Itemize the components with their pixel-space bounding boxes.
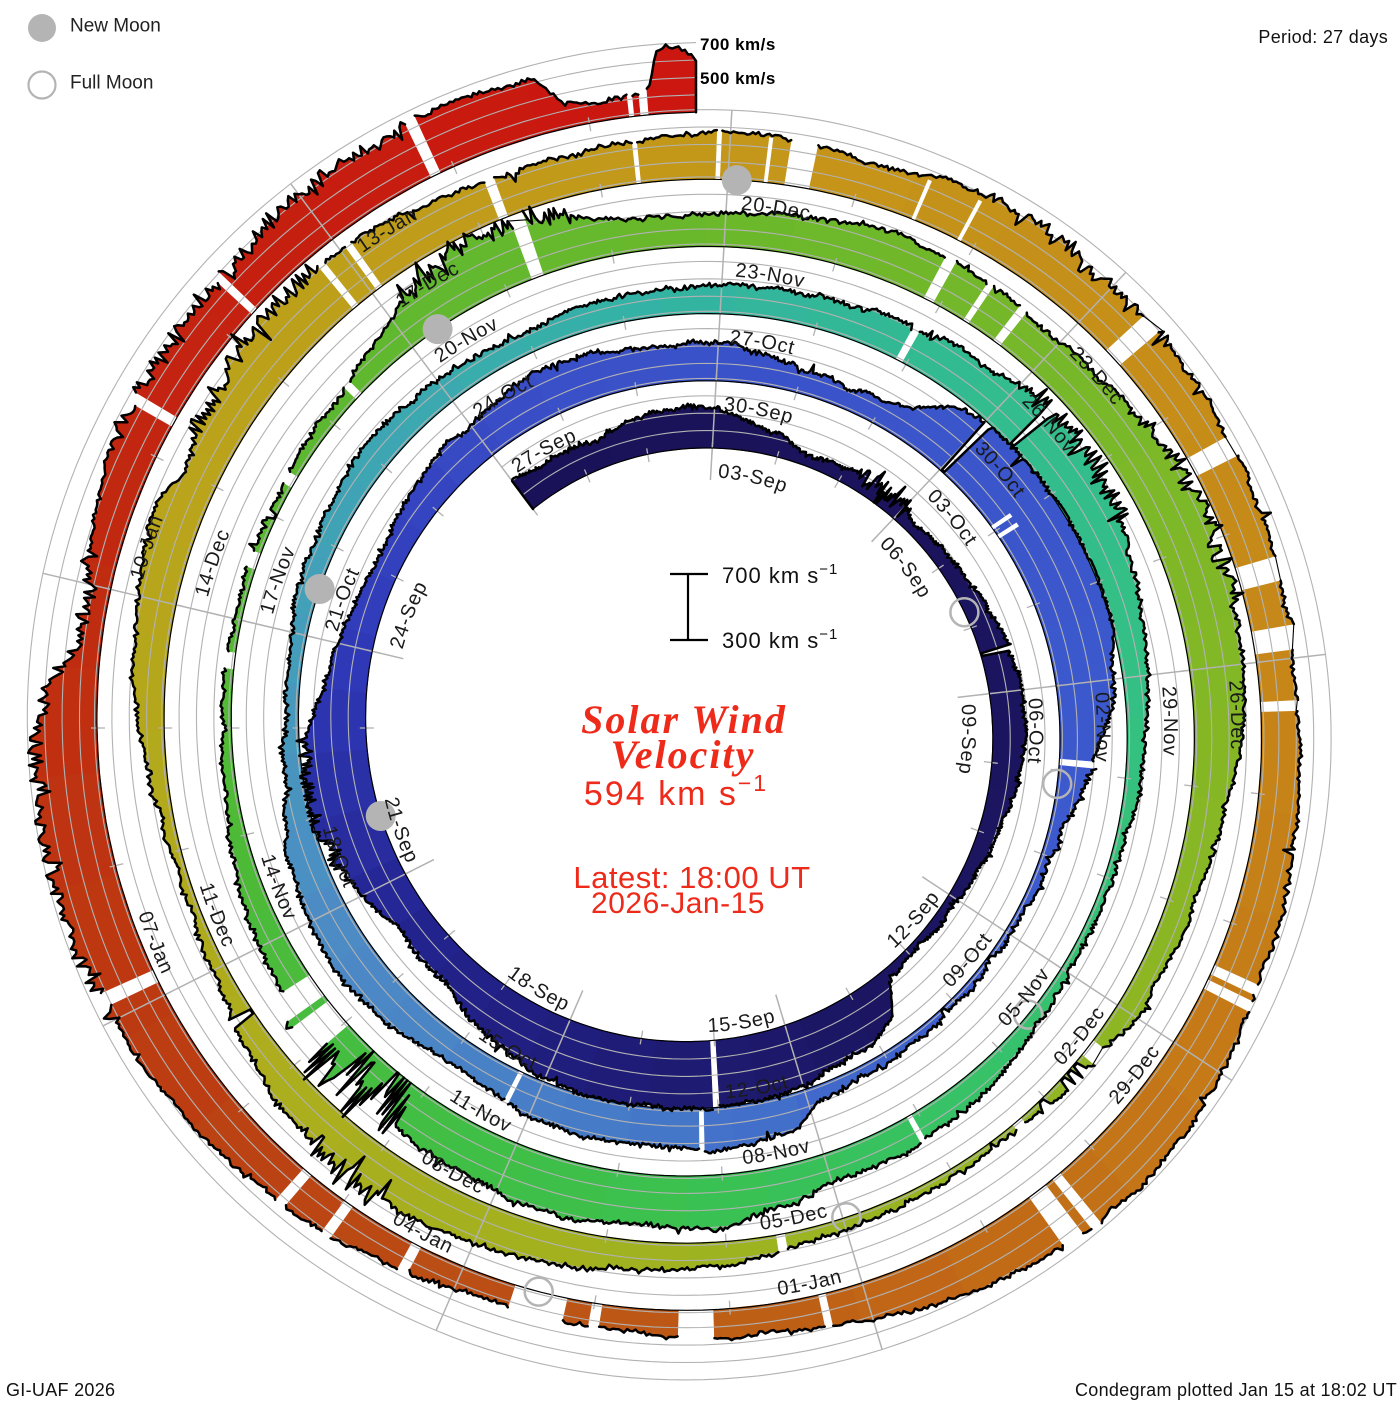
- svg-text:Velocity: Velocity: [611, 732, 756, 777]
- svg-text:Period: 27 days: Period: 27 days: [1258, 27, 1388, 47]
- svg-text:Full Moon: Full Moon: [70, 73, 153, 94]
- svg-text:06-Oct: 06-Oct: [1023, 697, 1047, 765]
- svg-text:New Moon: New Moon: [70, 16, 161, 37]
- svg-text:Condegram plotted Jan 15 at 18: Condegram plotted Jan 15 at 18:02 UT: [1075, 1380, 1397, 1400]
- svg-text:29-Nov: 29-Nov: [1157, 685, 1181, 756]
- svg-text:02-Nov: 02-Nov: [1090, 691, 1114, 763]
- svg-text:26-Dec: 26-Dec: [1224, 679, 1248, 750]
- svg-text:700 km/s: 700 km/s: [700, 35, 776, 54]
- svg-text:500 km/s: 500 km/s: [700, 69, 776, 88]
- svg-text:GI-UAF 2026: GI-UAF 2026: [6, 1380, 115, 1400]
- svg-text:09-Sep: 09-Sep: [954, 703, 980, 776]
- svg-text:2026-Jan-15: 2026-Jan-15: [591, 887, 765, 920]
